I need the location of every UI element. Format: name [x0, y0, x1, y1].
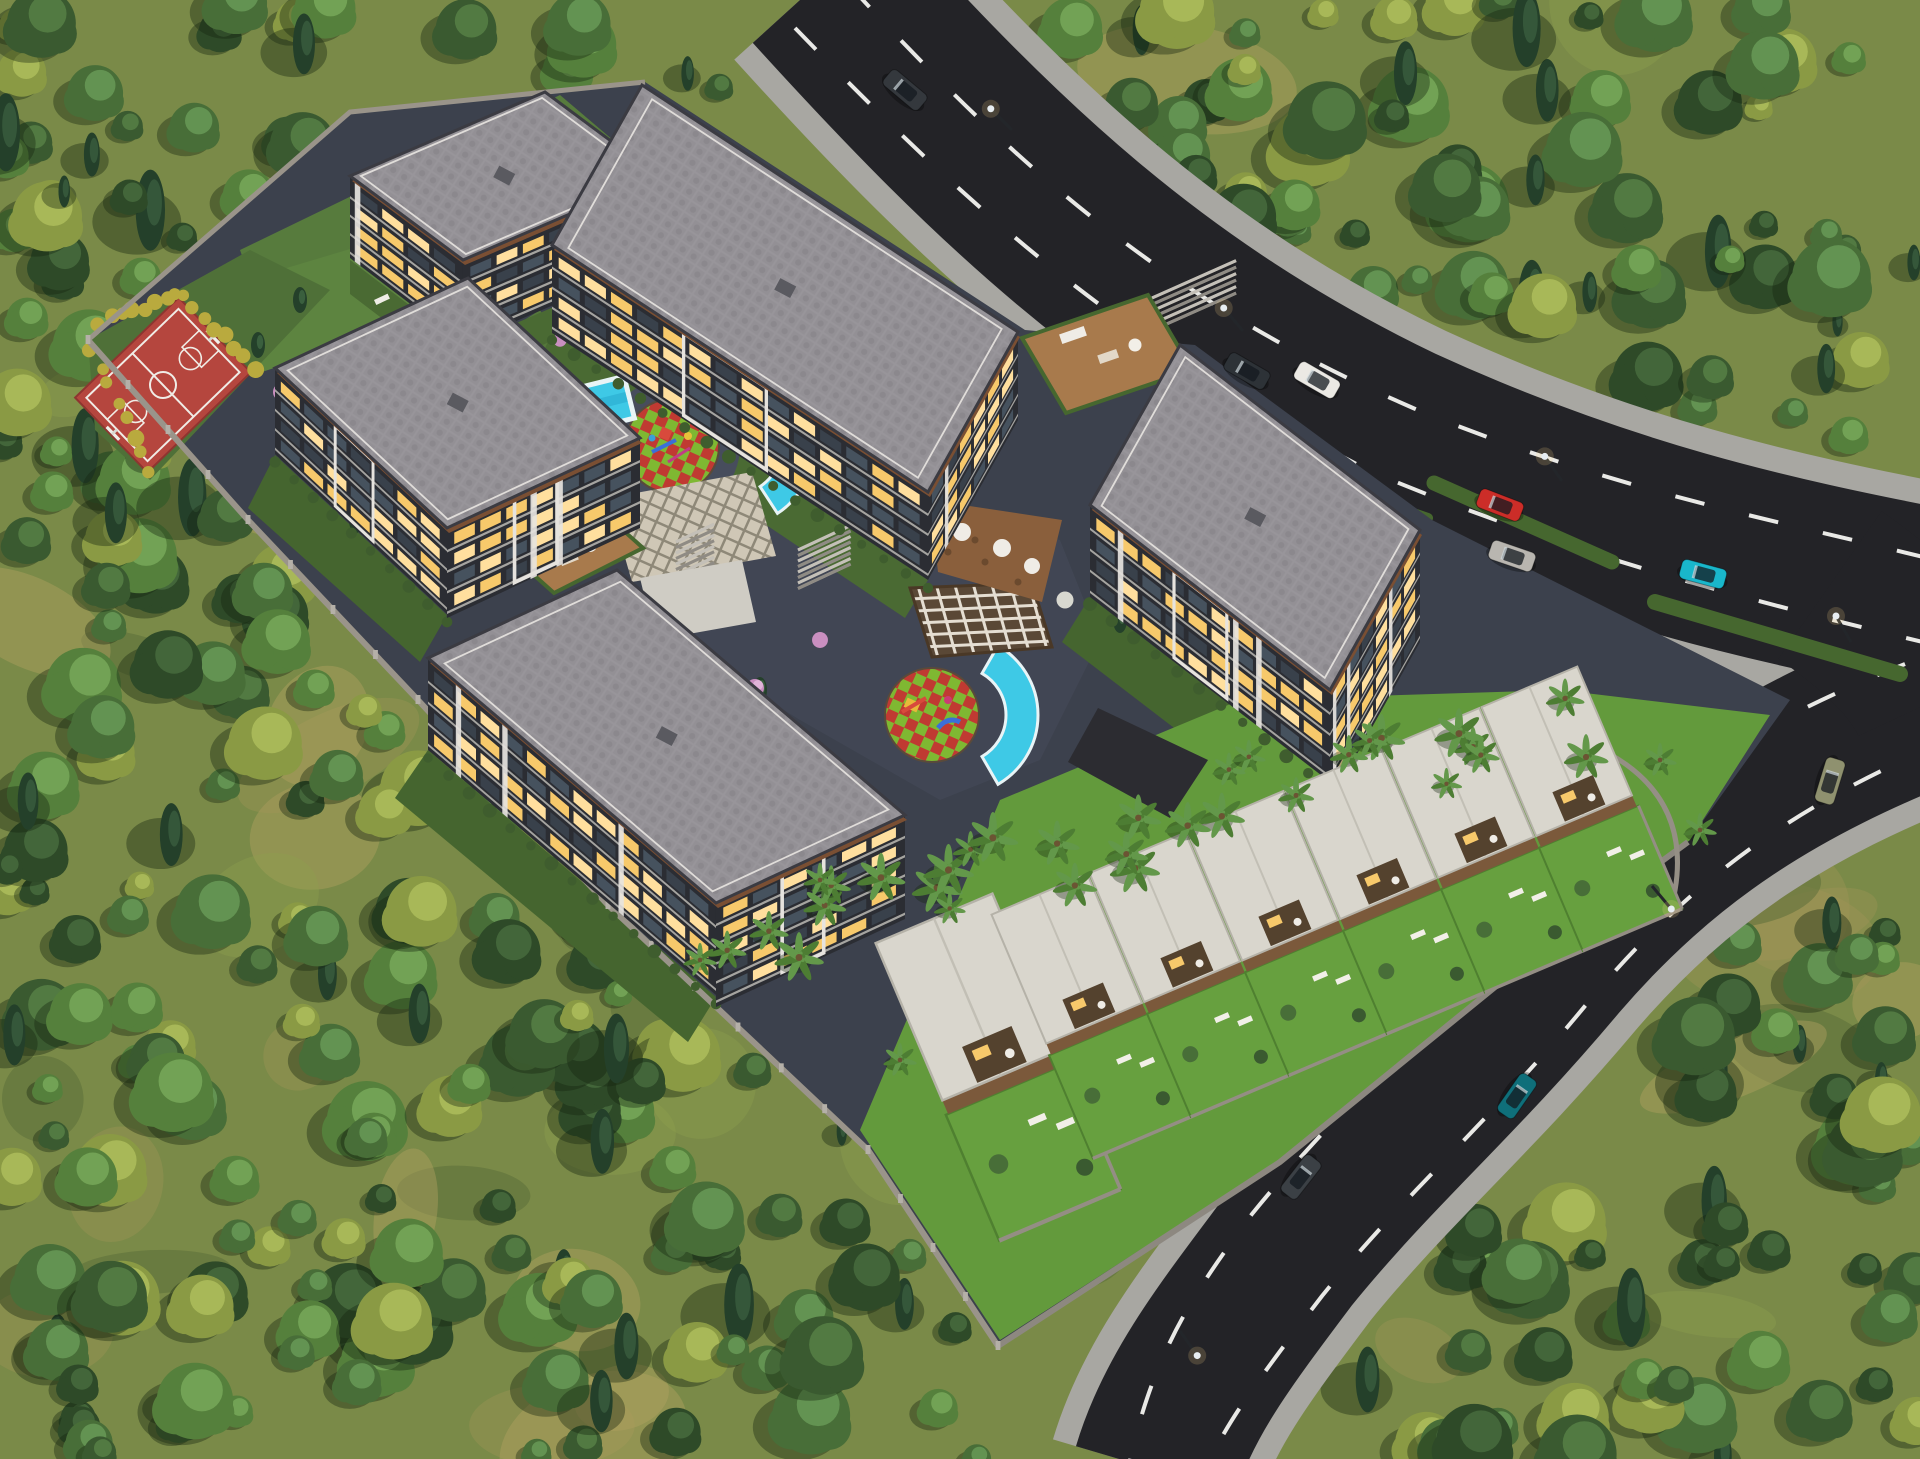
canopy-light: [123, 182, 143, 202]
hedge-bush: [289, 475, 299, 485]
cypress-light: [623, 1321, 636, 1359]
hedge-bush: [547, 335, 557, 345]
balcony-pier: [456, 682, 461, 779]
cypress-light: [113, 490, 125, 525]
yellow-hedge-bush: [217, 327, 233, 343]
canopy-light: [43, 1076, 59, 1092]
balcony-pier: [1233, 615, 1239, 711]
canopy-light: [462, 1067, 484, 1089]
canopy-light: [177, 225, 193, 241]
light-head: [1833, 613, 1840, 620]
canopy-light: [69, 654, 110, 695]
canopy-light: [728, 1337, 745, 1354]
playground-lower: [885, 668, 979, 762]
canopy-light: [251, 713, 291, 753]
palm-trunk: [1367, 738, 1372, 743]
canopy-light: [532, 1441, 548, 1457]
cypress-light: [11, 1012, 23, 1047]
cypress-light: [599, 1117, 611, 1154]
canopy-light: [546, 1354, 581, 1389]
cypress-light: [90, 138, 98, 163]
canopy-light: [199, 881, 240, 922]
hedge-bush: [1258, 733, 1270, 745]
canopy-light: [298, 1305, 331, 1338]
canopy-light: [190, 1280, 225, 1315]
canopy-light: [320, 1029, 351, 1060]
wall-post: [288, 560, 293, 569]
canopy-light: [1850, 337, 1881, 368]
cypress-light: [1533, 161, 1543, 190]
hedge-bush: [1216, 700, 1227, 711]
canopy-light: [155, 636, 193, 674]
canopy-light: [1751, 36, 1789, 74]
canopy-light: [408, 882, 447, 921]
hedge-bush: [269, 456, 280, 467]
wall-post: [331, 605, 336, 614]
cypress-light: [1912, 249, 1919, 269]
canopy-light: [492, 1192, 511, 1211]
cypress-light: [417, 991, 428, 1025]
canopy-light: [950, 1315, 967, 1332]
yellow-hedge-bush: [127, 430, 144, 447]
cypress-light: [1627, 1277, 1642, 1322]
hedge-bush: [613, 378, 624, 389]
canopy-light: [455, 4, 488, 37]
cypress-light: [598, 1377, 610, 1413]
canopy-light: [1843, 45, 1861, 63]
canopy-light: [1821, 221, 1838, 238]
canopy-light: [714, 76, 729, 91]
palm-trunk: [1072, 882, 1078, 888]
palm-trunk: [1583, 754, 1589, 760]
canopy-light: [582, 1275, 614, 1307]
cypress-light: [25, 779, 36, 812]
hedge-bush: [422, 599, 433, 610]
canopy-light: [1768, 1012, 1793, 1037]
canopy-light: [904, 1242, 922, 1260]
hedge-bush: [790, 495, 801, 506]
hedge-bush: [423, 753, 432, 762]
palm-trunk: [945, 866, 952, 873]
canopy-light: [251, 949, 272, 970]
cypress-light: [686, 60, 693, 80]
hedge-bush: [526, 841, 535, 850]
canopy-light: [5, 374, 42, 411]
canopy-light: [1460, 1410, 1502, 1452]
canopy-light: [1386, 102, 1404, 120]
canopy-light: [122, 113, 139, 130]
hedge-bush: [567, 876, 576, 885]
canopy-light: [1850, 937, 1873, 960]
palm-trunk: [724, 948, 729, 953]
light-head: [1194, 1352, 1201, 1359]
palm-trunk: [878, 874, 885, 881]
wall-post: [866, 1145, 871, 1154]
yellow-hedge-bush: [114, 398, 126, 410]
cypress-light: [1523, 0, 1538, 43]
canopy-light: [1585, 1242, 1601, 1258]
palm-trunk: [1658, 758, 1663, 763]
canopy-light: [122, 899, 143, 920]
canopy-light: [1762, 1234, 1784, 1256]
cypress-light: [63, 179, 69, 197]
canopy-light: [328, 754, 356, 782]
hedge-bush: [443, 770, 454, 781]
canopy-light: [1877, 945, 1895, 963]
canopy-light: [98, 1267, 138, 1307]
canopy-light: [837, 1203, 863, 1229]
canopy-light: [135, 874, 150, 889]
hedge-bush: [1303, 768, 1313, 778]
hedge-bush: [591, 364, 601, 374]
canopy-light: [854, 1249, 891, 1286]
balcony-pier: [355, 180, 361, 266]
canopy-light: [159, 1059, 203, 1103]
canopy-light: [232, 1222, 251, 1241]
palm-trunk: [947, 906, 951, 910]
canopy-light: [505, 1238, 525, 1258]
hedge-bush: [834, 524, 845, 535]
canopy-light: [1535, 1332, 1565, 1362]
yellow-hedge-bush: [236, 348, 251, 363]
canopy-light: [1759, 213, 1774, 228]
cypress-light: [2, 103, 17, 148]
wall-post: [931, 1243, 936, 1252]
canopy-light: [94, 1439, 112, 1457]
palm-trunk: [1227, 767, 1232, 772]
canopy-light: [1506, 1244, 1542, 1280]
canopy-light: [1629, 249, 1655, 275]
canopy-light: [45, 475, 67, 497]
canopy-light: [1880, 920, 1896, 936]
canopy-light: [1434, 159, 1472, 197]
canopy-light: [19, 301, 42, 324]
cypress-light: [1824, 350, 1833, 378]
palm-trunk: [1562, 696, 1567, 701]
wall-post: [373, 650, 378, 659]
canopy-light: [1859, 1256, 1877, 1274]
canopy-light: [32, 757, 69, 794]
palm-trunk: [1247, 754, 1252, 759]
wall-post: [736, 1023, 741, 1032]
hedge-bush: [768, 481, 778, 491]
canopy-light: [181, 1369, 223, 1411]
cypress-light: [1544, 66, 1556, 102]
hedge-bush: [586, 892, 598, 904]
canopy-light: [667, 1412, 694, 1439]
hedge-bush: [923, 583, 933, 593]
canopy-light: [76, 1152, 109, 1185]
light-head: [1668, 905, 1675, 912]
canopy-light: [1614, 179, 1653, 218]
canopy-light: [1881, 1294, 1910, 1323]
canopy-light: [308, 673, 329, 694]
canopy-light: [395, 1224, 433, 1262]
cypress-light: [82, 417, 96, 460]
light-head: [1220, 305, 1227, 312]
wall-post: [963, 1292, 968, 1301]
wall-post: [246, 515, 251, 524]
canopy-light: [185, 107, 212, 134]
yellow-hedge-bush: [247, 361, 264, 378]
canopy-light: [309, 1272, 327, 1290]
cypress-light: [1364, 1354, 1377, 1392]
canopy-light: [85, 70, 116, 101]
hedge-bush: [679, 422, 690, 433]
canopy-light: [1788, 400, 1804, 416]
canopy-light: [1635, 348, 1673, 386]
canopy-light: [67, 919, 94, 946]
yellow-hedge-bush: [198, 312, 211, 325]
palm-trunk: [766, 928, 772, 934]
balcony-pier: [1256, 633, 1262, 729]
yellow-hedge-bush: [185, 301, 198, 314]
hedge-bush: [366, 546, 375, 555]
road-junction: [1830, 585, 1920, 698]
yellow-hedge-bush: [147, 294, 163, 310]
conifer-light: [257, 335, 263, 349]
palm-trunk: [1294, 793, 1299, 798]
canopy-light: [666, 1150, 690, 1174]
cypress-light: [301, 21, 313, 56]
canopy-light: [1318, 1, 1334, 17]
cypress-light: [735, 1273, 751, 1320]
palm-trunk: [1135, 815, 1141, 821]
canopy-light: [746, 1056, 766, 1076]
wall-post: [86, 335, 91, 344]
canopy-light: [306, 911, 339, 944]
palm-trunk: [1478, 752, 1483, 757]
canopy-light: [1412, 268, 1428, 284]
light-head: [1541, 453, 1548, 460]
hedge-bush: [857, 540, 866, 549]
canopy-light: [1817, 245, 1860, 288]
canopy-light: [291, 1203, 311, 1223]
yellow-hedge-bush: [142, 466, 154, 478]
canopy-light: [1668, 1369, 1689, 1390]
palm-trunk: [1054, 840, 1060, 846]
canopy-light: [18, 521, 44, 547]
palm-trunk: [1346, 752, 1351, 757]
canopy-light: [296, 1007, 315, 1026]
canopy-light: [1725, 248, 1740, 263]
palm-trunk: [796, 954, 803, 961]
palm-trunk: [1219, 813, 1225, 819]
canopy-light: [1868, 1083, 1910, 1125]
yellow-hedge-bush: [100, 376, 112, 388]
palm-trunk: [1456, 730, 1463, 737]
hedge-bush: [879, 554, 888, 563]
canopy-light: [1749, 1336, 1782, 1369]
cypress-light: [613, 1022, 626, 1062]
canopy-light: [572, 1003, 589, 1020]
hedge-bush: [691, 982, 700, 991]
canopy-light: [1718, 1206, 1742, 1230]
canopy-light: [349, 1363, 374, 1388]
canopy-light: [1, 1153, 33, 1185]
canopy-light: [809, 1323, 852, 1366]
wall-post: [996, 1341, 1001, 1350]
hedge-bush: [308, 492, 319, 503]
palm-trunk: [818, 878, 823, 883]
canopy-light: [91, 701, 126, 736]
aerial-render: [0, 0, 1920, 1459]
canopy-light: [71, 1368, 93, 1390]
canopy-light: [1484, 276, 1508, 300]
cypress-light: [168, 811, 180, 847]
canopy-light: [496, 925, 532, 961]
palm-trunk: [1698, 828, 1703, 833]
canopy-light: [1584, 4, 1599, 19]
hedge-bush: [346, 528, 357, 539]
canopy-light: [1285, 184, 1313, 212]
flower-bed: [1056, 591, 1073, 608]
canopy-light: [1240, 21, 1256, 37]
hedge-bush: [746, 467, 755, 476]
canopy-light: [227, 1160, 253, 1186]
cypress-light: [1588, 276, 1596, 299]
hedge-bush: [1238, 718, 1247, 727]
balcony-pier: [945, 456, 948, 550]
balcony-pier: [618, 820, 623, 917]
wall-post: [898, 1194, 903, 1203]
yellow-hedge-bush: [120, 411, 133, 424]
wall-post: [822, 1104, 827, 1113]
canopy-light: [134, 261, 156, 283]
balcony-pier: [502, 721, 507, 818]
canopy-light: [1842, 420, 1863, 441]
canopy-light: [253, 568, 285, 600]
wall-post: [206, 470, 211, 479]
canopy-light: [1703, 359, 1727, 383]
yellow-hedge-bush: [134, 445, 147, 458]
hedge-bush: [669, 963, 680, 974]
palm-trunk: [1184, 822, 1190, 828]
canopy-light: [1239, 57, 1256, 74]
light-head: [987, 105, 994, 112]
canopy-light: [1, 855, 19, 873]
hedge-bush: [635, 393, 646, 404]
balcony-pier: [530, 486, 536, 579]
canopy-light: [389, 946, 427, 984]
canopy-light: [376, 1186, 392, 1202]
canopy-light: [1552, 1189, 1595, 1232]
canopy-light: [1716, 1248, 1735, 1267]
canopy-light: [1060, 3, 1094, 37]
hedge-bush: [658, 408, 668, 418]
palm-trunk: [698, 958, 703, 963]
wall-post: [126, 380, 131, 389]
canopy-light: [1350, 222, 1366, 238]
canopy-light: [359, 697, 378, 716]
canopy-light: [1532, 279, 1568, 315]
canopy-light: [359, 1121, 381, 1143]
canopy-light: [49, 1124, 65, 1140]
canopy-light: [37, 1250, 76, 1289]
hedge-bush: [442, 617, 453, 628]
canopy-light: [1461, 1333, 1485, 1357]
canopy-light: [1809, 1385, 1843, 1419]
canopy-light: [98, 567, 123, 592]
canopy-light: [291, 1338, 310, 1357]
yellow-hedge-bush: [178, 290, 189, 301]
canopy-light: [337, 1222, 360, 1245]
cypress-light: [1829, 903, 1839, 933]
scene-canvas: [0, 0, 1920, 1459]
cypress-light: [146, 179, 161, 225]
canopy-light: [1169, 101, 1199, 131]
palm-trunk: [898, 1058, 903, 1063]
canopy-light: [1570, 118, 1612, 160]
hedge-bush: [629, 929, 639, 939]
canopy-light: [1681, 1003, 1724, 1046]
canopy-light: [201, 647, 236, 682]
cypress-light: [1402, 49, 1414, 85]
canopy-light: [1312, 88, 1355, 131]
hedge-bush: [648, 945, 662, 959]
flower-bed: [812, 632, 828, 648]
canopy-light: [1465, 1208, 1494, 1237]
canopy-light: [1591, 75, 1623, 107]
canopy-light: [1387, 0, 1411, 24]
hedge-bush: [901, 568, 911, 578]
wall-post: [416, 695, 421, 704]
cypress-light: [902, 1284, 912, 1314]
wall-post: [166, 425, 171, 434]
hedge-bush: [385, 564, 394, 573]
palm-trunk: [989, 834, 996, 841]
canopy-light: [442, 1264, 477, 1299]
canopy-light: [128, 987, 155, 1014]
canopy-light: [1874, 1011, 1907, 1044]
canopy-light: [51, 439, 67, 455]
canopy-light: [103, 612, 121, 630]
canopy-light: [772, 1197, 796, 1221]
canopy-light: [266, 615, 302, 651]
canopy-light: [1122, 82, 1151, 111]
hedge-bush: [505, 823, 515, 833]
conifer-light: [299, 290, 305, 304]
hedge-bush: [608, 911, 617, 920]
wall-post: [779, 1063, 784, 1072]
palm-trunk: [1123, 851, 1129, 857]
hedge-bush: [1151, 650, 1161, 660]
canopy-light: [69, 988, 103, 1022]
canopy-light: [1869, 1370, 1888, 1389]
canopy-light: [931, 1392, 952, 1413]
palm-trunk: [1444, 782, 1448, 786]
canopy-light: [379, 1289, 421, 1331]
balcony-pier: [1389, 579, 1392, 697]
balcony-pier: [1118, 526, 1124, 622]
canopy-light: [692, 1188, 733, 1229]
